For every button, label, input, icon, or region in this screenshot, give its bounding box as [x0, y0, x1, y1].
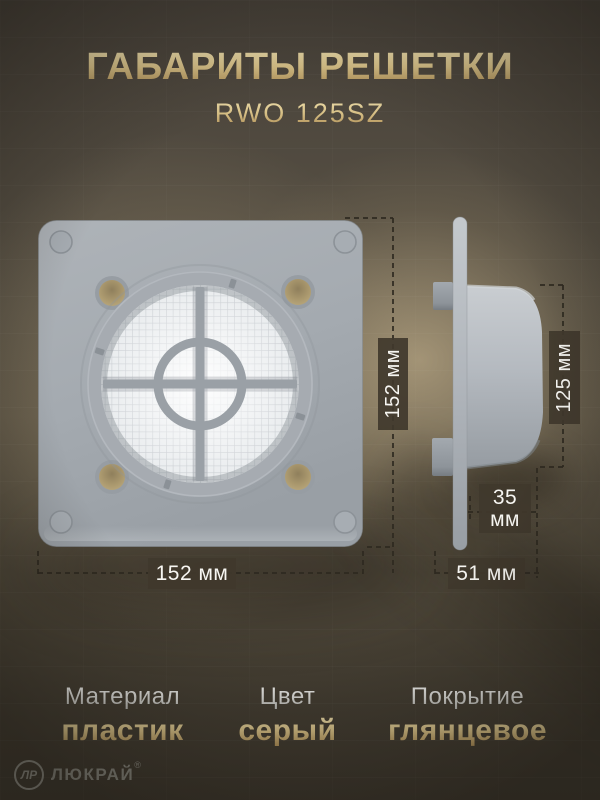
spec-coating-label: Покрытие [375, 683, 560, 711]
total-depth-value: 51 мм [456, 562, 517, 586]
duct-depth-value: 35 [493, 487, 517, 509]
registered-trademark-symbol: ® [134, 760, 141, 770]
brand-monogram-icon: ЛР [14, 760, 44, 790]
front-width-value: 152 мм [156, 562, 229, 586]
duct-diameter-badge: 125 мм [549, 331, 580, 424]
duct-depth-unit: мм [490, 509, 520, 531]
front-width-badge: 152 мм [148, 558, 236, 589]
spec-color: Цвет серый [205, 683, 370, 748]
brand-name: ЛЮКРАЙ [51, 765, 134, 784]
spec-material-value: пластик [40, 714, 205, 748]
front-height-value: 152 мм [382, 349, 405, 418]
spec-color-label: Цвет [205, 683, 370, 711]
spec-material-label: Материал [40, 683, 205, 711]
spec-coating-value: глянцевое [375, 714, 560, 748]
product-dimensions-infographic: 152 мм 125 мм 152 мм 35 мм 51 мм ГАБАРИТ… [0, 0, 600, 800]
spec-coating: Покрытие глянцевое [375, 683, 560, 748]
duct-depth-badge: 35 мм [479, 484, 531, 533]
title-block: ГАБАРИТЫ РЕШЕТКИ RWO 125SZ [0, 48, 600, 129]
page-title: ГАБАРИТЫ РЕШЕТКИ [0, 48, 600, 88]
brand-monogram: ЛР [21, 768, 37, 782]
front-height-badge: 152 мм [378, 338, 408, 430]
total-depth-badge: 51 мм [448, 558, 525, 589]
spec-material: Материал пластик [40, 683, 205, 748]
brand-logo: ЛР ЛЮКРАЙ® [14, 760, 141, 790]
spec-color-value: серый [205, 714, 370, 748]
model-code: RWO 125SZ [0, 98, 600, 129]
duct-diameter-value: 125 мм [553, 343, 576, 412]
